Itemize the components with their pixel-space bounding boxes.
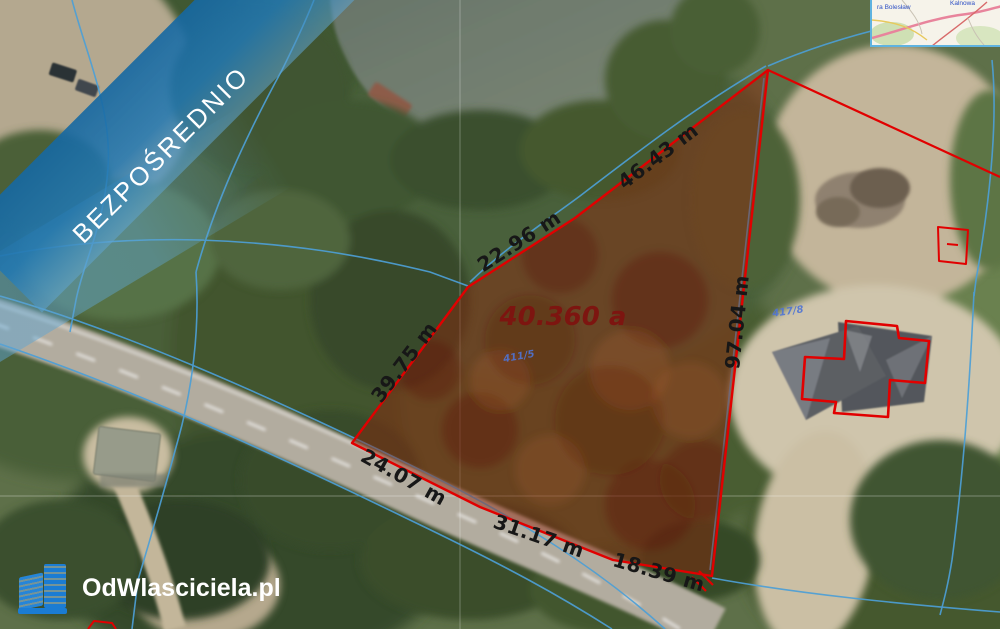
- property-listing-aerial-photo: 46.43 m 22.96 m 39.75 m 24.07 m 31.17 m …: [0, 0, 1000, 629]
- watermark-logo: OdWlasciciela.pl: [18, 556, 338, 622]
- building-base-shape: [18, 608, 67, 614]
- buildings-icon: [18, 562, 68, 614]
- parcel-area-label: 40.360 a: [500, 302, 627, 332]
- inset-place-label: Kalnowa: [950, 0, 975, 7]
- building-left-shape: [19, 572, 43, 610]
- building-right-shape: [44, 564, 66, 608]
- inset-place-label: ra Bolesław: [877, 4, 911, 11]
- site-name: OdWlasciciela.pl: [82, 574, 281, 603]
- location-map-inset: ra Bolesław Kalnowa: [870, 0, 1000, 47]
